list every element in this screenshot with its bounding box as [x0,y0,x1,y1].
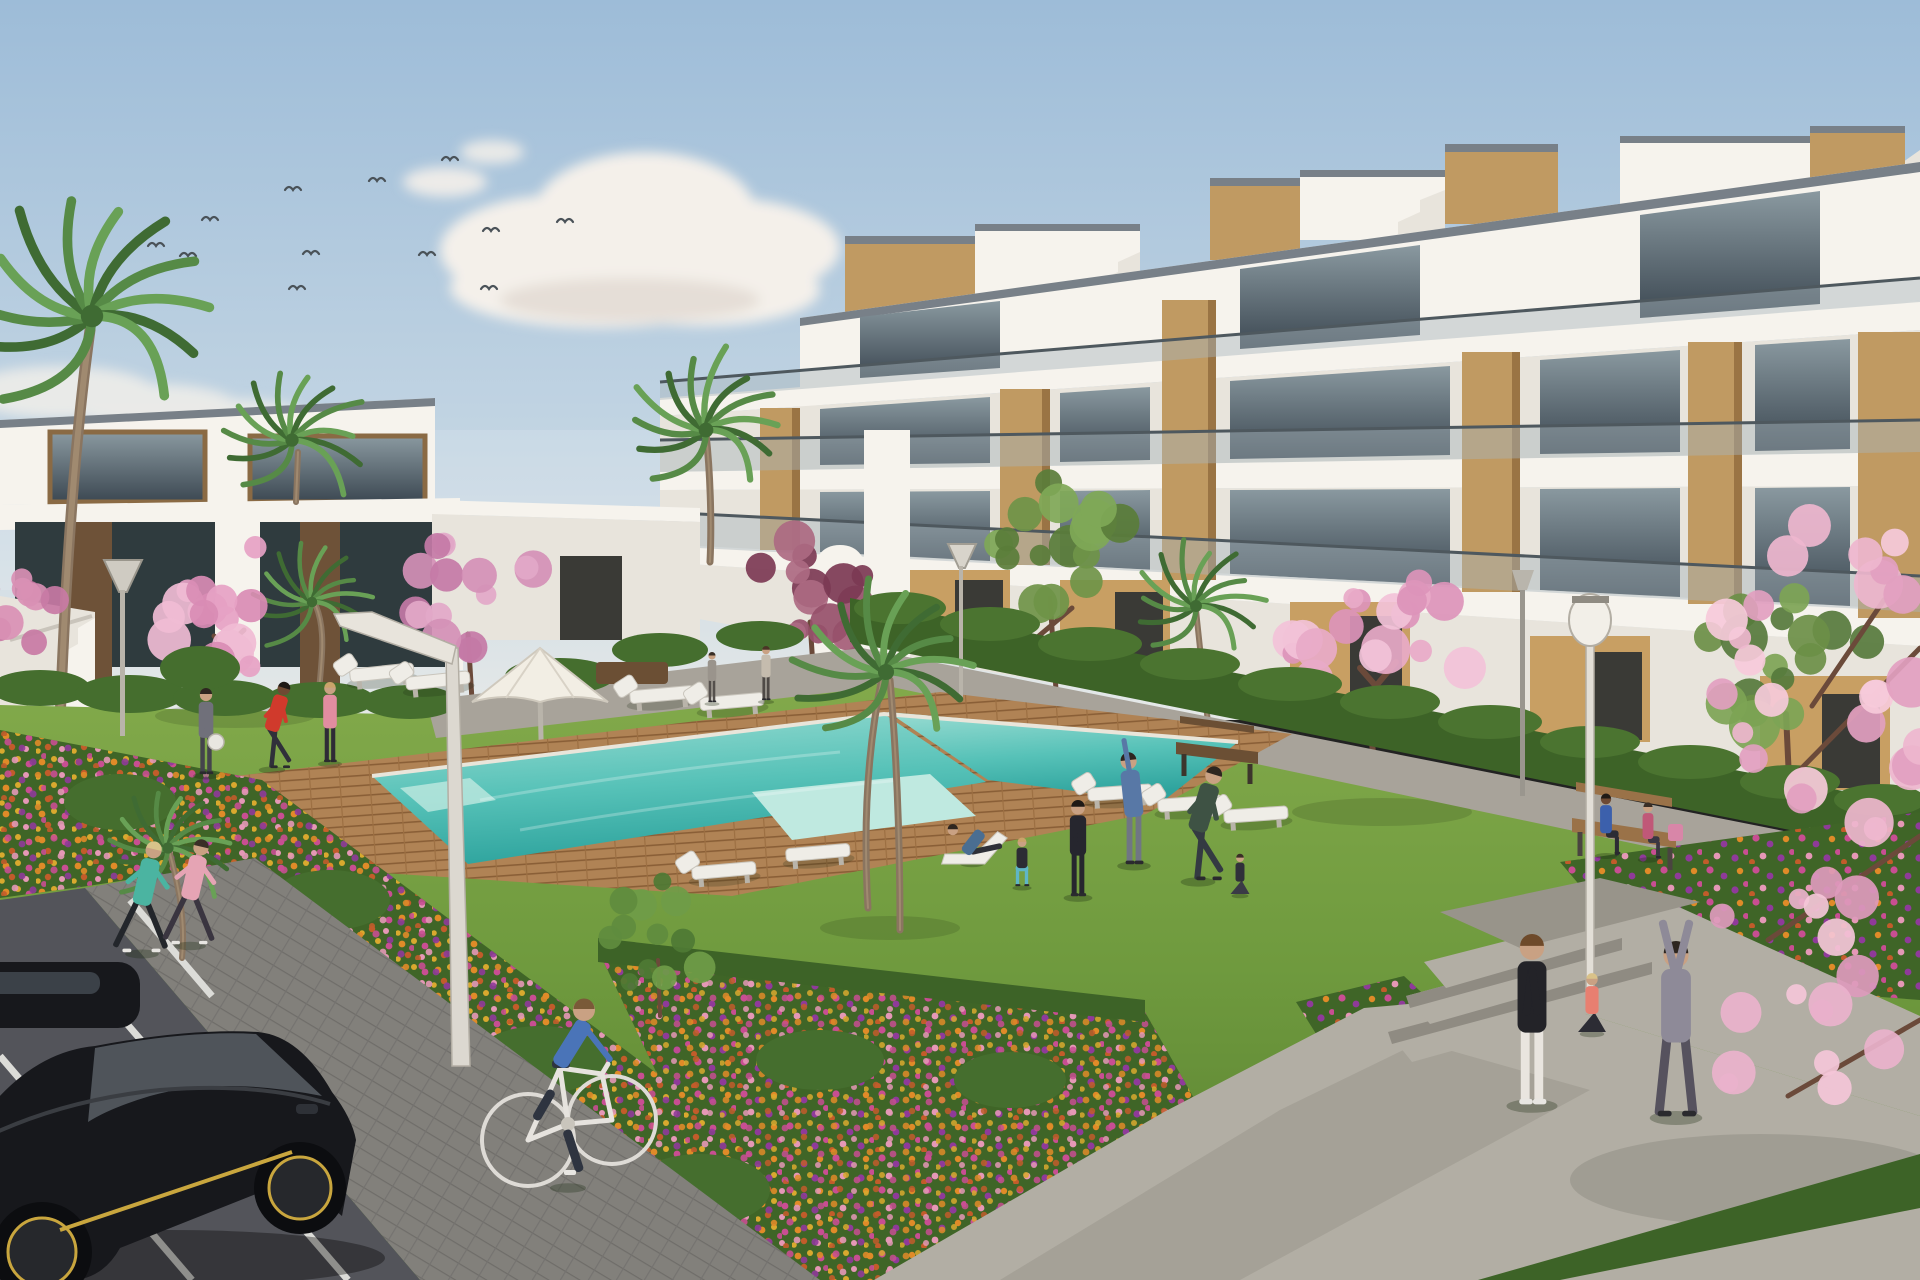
ball [208,734,224,750]
property-rendering [0,0,1920,1280]
car-background [0,962,140,1028]
scene-canvas [0,0,1920,1280]
roof-wood-box [1445,144,1558,224]
center-low-opening [560,556,622,640]
roof-wood-box [1210,178,1300,260]
side-mirror [296,1104,318,1114]
pink-bag [1668,824,1683,841]
